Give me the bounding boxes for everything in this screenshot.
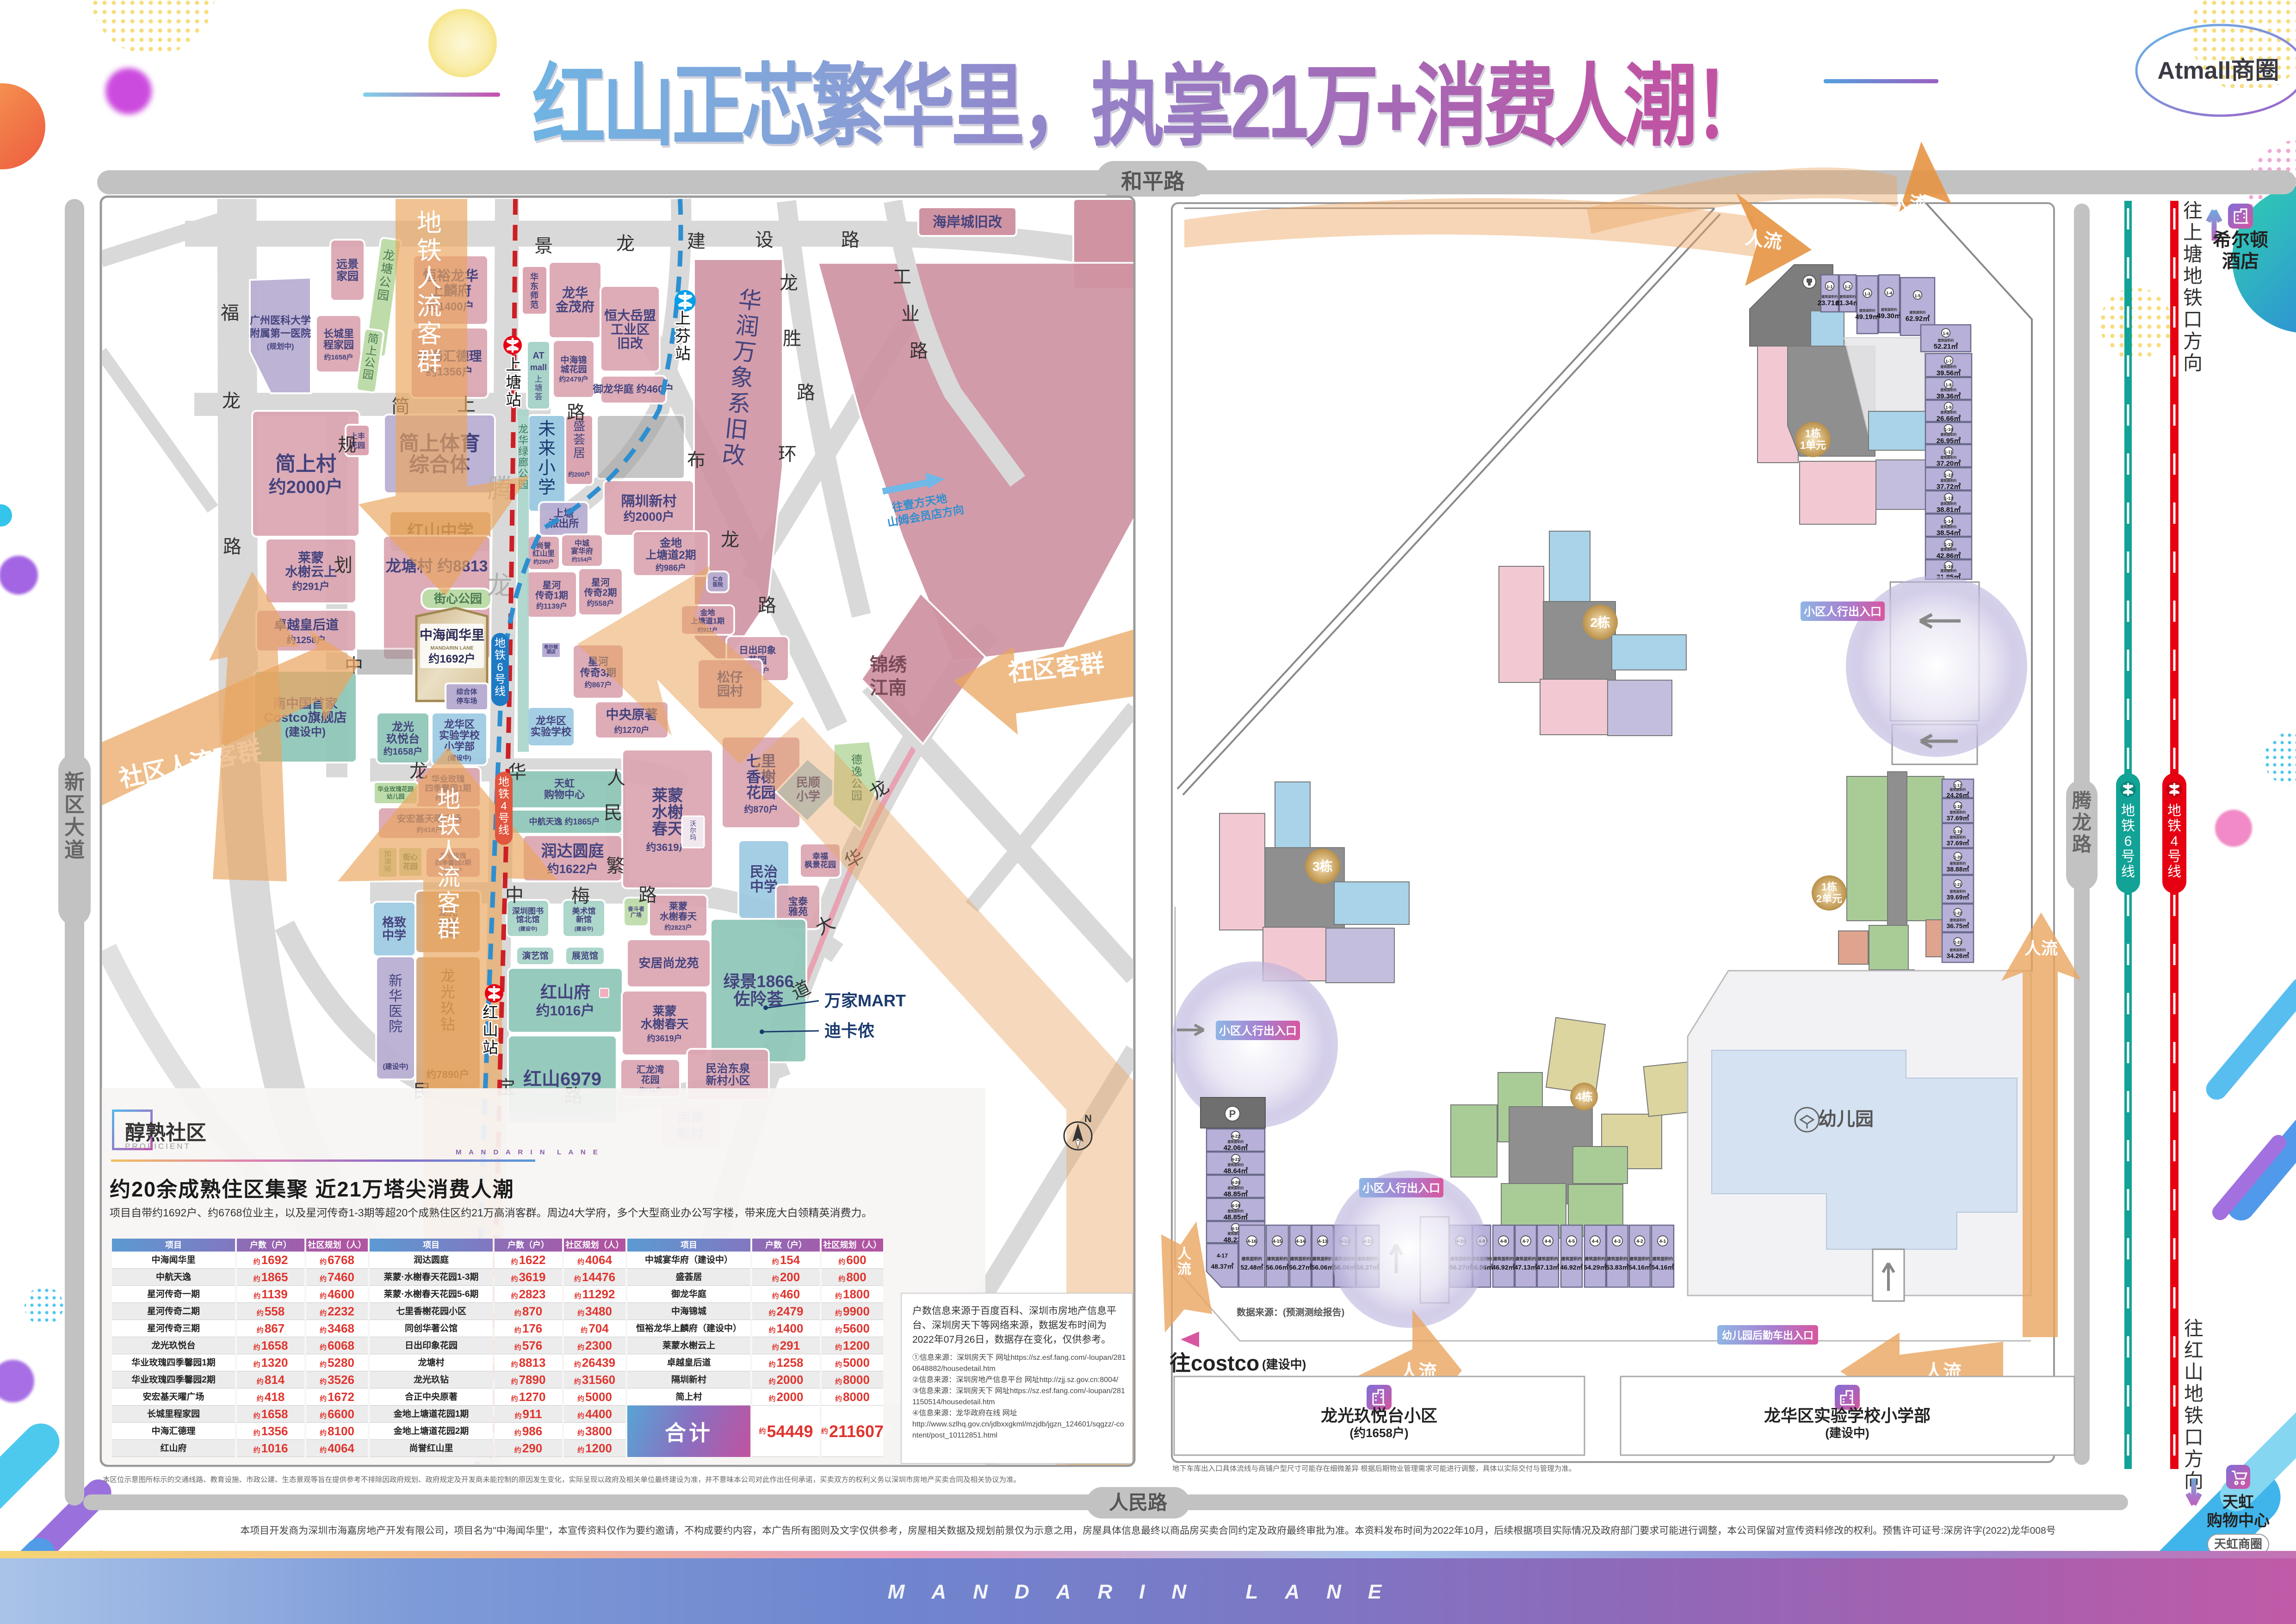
- svg-text:中学: 中学: [750, 879, 778, 895]
- svg-text:上: 上: [675, 310, 691, 328]
- svg-text:莱蒙: 莱蒙: [652, 787, 683, 805]
- svg-text:口: 口: [2184, 1426, 2203, 1448]
- svg-text:仁合: 仁合: [713, 576, 724, 582]
- svg-text:塘: 塘: [535, 384, 543, 392]
- svg-text:远景: 远景: [336, 258, 359, 271]
- svg-text:廊: 廊: [518, 457, 528, 468]
- svg-text:中航天逸 约1865户: 中航天逸 约1865户: [529, 817, 600, 826]
- svg-text:1-4: 1-4: [1886, 291, 1892, 295]
- svg-text:酒店: 酒店: [2222, 251, 2259, 272]
- svg-text:铁: 铁: [417, 237, 442, 265]
- svg-text:建筑面积约: 建筑面积约: [1840, 295, 1856, 299]
- svg-text:环: 环: [778, 444, 797, 465]
- svg-text:中: 中: [505, 885, 524, 905]
- svg-text:象: 象: [729, 364, 755, 392]
- svg-text:约290户: 约290户: [533, 558, 554, 565]
- svg-text:传奇2期: 传奇2期: [583, 587, 617, 598]
- svg-text:山: 山: [2184, 1361, 2203, 1383]
- svg-text:约1622户: 约1622户: [547, 862, 598, 876]
- svg-text:红山里: 红山里: [532, 549, 555, 558]
- svg-text:小区人行出入口: 小区人行出入口: [1219, 1024, 1297, 1037]
- svg-text:建筑面积约: 建筑面积约: [1607, 1256, 1628, 1261]
- svg-text:47.13㎡: 47.13㎡: [1536, 1264, 1559, 1271]
- svg-text:建筑面积约: 建筑面积约: [1910, 310, 1926, 315]
- svg-text:1-21: 1-21: [1954, 882, 1962, 886]
- svg-text:德: 德: [851, 754, 862, 766]
- svg-text:路: 路: [638, 885, 657, 905]
- svg-text:1-19: 1-19: [1954, 830, 1962, 834]
- svg-text:39.56㎡: 39.56㎡: [1937, 369, 1961, 377]
- svg-text:1-6: 1-6: [1943, 331, 1949, 336]
- svg-text:46.92㎡: 46.92㎡: [1492, 1264, 1515, 1271]
- svg-text:地: 地: [2184, 1383, 2203, 1405]
- svg-text:金地: 金地: [659, 536, 682, 549]
- svg-text:往: 往: [2183, 200, 2203, 222]
- svg-text:1-18: 1-18: [1954, 805, 1962, 809]
- svg-text:园: 园: [362, 368, 375, 382]
- svg-text:新馆: 新馆: [576, 915, 592, 924]
- svg-text:小区人行出入口: 小区人行出入口: [1804, 605, 1881, 618]
- svg-text:建筑面积约: 建筑面积约: [1493, 1256, 1514, 1261]
- svg-text:街心公园: 街心公园: [433, 592, 482, 606]
- svg-text:53.83㎡: 53.83㎡: [1606, 1264, 1628, 1271]
- svg-text:铁: 铁: [2183, 287, 2203, 309]
- svg-text:4-19: 4-19: [1232, 1203, 1240, 1208]
- svg-text:广州医科大学: 广州医科大学: [250, 315, 311, 326]
- svg-text:民治东泉: 民治东泉: [706, 1062, 751, 1075]
- svg-text:建筑面积约: 建筑面积约: [1584, 1256, 1605, 1261]
- svg-text:广场: 广场: [631, 911, 642, 918]
- svg-text:幼儿园后勤车出入口: 幼儿园后勤车出入口: [1722, 1330, 1813, 1341]
- svg-text:华: 华: [518, 434, 528, 446]
- svg-text:建筑面积约: 建筑面积约: [1941, 433, 1957, 437]
- svg-text:建筑面积约: 建筑面积约: [1950, 889, 1966, 893]
- svg-text:铁: 铁: [437, 812, 460, 838]
- svg-text:约1270户: 约1270户: [614, 725, 649, 735]
- svg-text:39.69㎡: 39.69㎡: [1946, 893, 1969, 901]
- svg-text:上塘道2期: 上塘道2期: [645, 548, 696, 561]
- svg-text:人民路: 人民路: [1109, 1492, 1168, 1513]
- svg-text:建筑面积约: 建筑面积约: [1941, 455, 1957, 459]
- svg-text:建筑面积约: 建筑面积约: [1881, 308, 1897, 312]
- svg-text:建筑面积约: 建筑面积约: [1859, 309, 1875, 313]
- svg-text:往costco: 往costco: [1170, 1351, 1259, 1375]
- svg-text:恒大岳盟: 恒大岳盟: [604, 309, 656, 323]
- svg-text:路: 路: [223, 537, 241, 557]
- svg-text:隔圳新村: 隔圳新村: [621, 494, 677, 509]
- svg-text:(规划中): (规划中): [267, 342, 294, 351]
- svg-text:方: 方: [2183, 330, 2203, 352]
- svg-text:站: 站: [483, 1039, 498, 1057]
- svg-text:程家园: 程家园: [323, 339, 354, 351]
- svg-text:红山6979: 红山6979: [523, 1069, 601, 1090]
- svg-text:N: N: [1084, 1113, 1092, 1124]
- svg-text:流: 流: [417, 292, 442, 320]
- svg-text:春天: 春天: [652, 820, 683, 838]
- svg-text:52.21㎡: 52.21㎡: [1934, 342, 1958, 351]
- svg-text:景: 景: [534, 236, 553, 256]
- svg-text:1-16: 1-16: [1944, 564, 1953, 569]
- svg-text:流: 流: [1177, 1262, 1191, 1277]
- svg-text:1-5: 1-5: [1914, 293, 1920, 298]
- svg-text:4-6: 4-6: [1545, 1239, 1552, 1244]
- svg-text:47.13㎡: 47.13㎡: [1514, 1264, 1537, 1271]
- svg-text:号: 号: [2121, 849, 2135, 864]
- svg-text:小: 小: [538, 459, 556, 478]
- svg-text:铁: 铁: [2121, 818, 2135, 834]
- svg-text:路: 路: [2072, 833, 2092, 855]
- svg-text:线: 线: [498, 824, 509, 837]
- svg-text:42.86㎡: 42.86㎡: [1937, 552, 1961, 560]
- svg-text:水榭云上: 水榭云上: [285, 564, 337, 579]
- svg-text:39.36㎡: 39.36㎡: [1937, 392, 1961, 400]
- svg-text:师: 师: [530, 291, 538, 300]
- svg-text:4: 4: [501, 800, 507, 812]
- svg-text:中海闻华里: 中海闻华里: [420, 627, 484, 642]
- svg-text:龙: 龙: [382, 248, 396, 263]
- svg-text:建筑面积约: 建筑面积约: [1941, 502, 1957, 506]
- svg-text:建筑面积约: 建筑面积约: [1312, 1256, 1333, 1261]
- svg-text:万: 万: [732, 338, 758, 366]
- svg-text:上: 上: [506, 356, 521, 374]
- svg-text:地: 地: [2183, 265, 2203, 287]
- svg-text:1-23: 1-23: [1954, 941, 1962, 945]
- svg-text:汇龙湾: 汇龙湾: [637, 1064, 664, 1075]
- svg-text:中城: 中城: [575, 539, 589, 548]
- svg-text:宴华府: 宴华府: [571, 547, 593, 556]
- svg-text:4-16: 4-16: [1247, 1239, 1256, 1244]
- svg-text:48.37㎡: 48.37㎡: [1211, 1263, 1233, 1270]
- svg-text:约1016户: 约1016户: [536, 1003, 595, 1018]
- svg-text:龙华区: 龙华区: [444, 719, 475, 730]
- svg-text:海岸城旧改: 海岸城旧改: [933, 215, 1002, 230]
- svg-text:迪卡侬: 迪卡侬: [824, 1021, 874, 1040]
- svg-text:规: 规: [338, 435, 356, 455]
- svg-text:建筑面积约: 建筑面积约: [1941, 547, 1957, 552]
- svg-text:华: 华: [530, 272, 538, 282]
- svg-text:49.30㎡: 49.30㎡: [1877, 311, 1901, 320]
- svg-text:1-14: 1-14: [1944, 519, 1953, 524]
- svg-text:天虹: 天虹: [554, 778, 575, 789]
- svg-text:37.69㎡: 37.69㎡: [1946, 814, 1969, 822]
- svg-text:龙: 龙: [222, 391, 241, 411]
- svg-text:旧改: 旧改: [617, 336, 643, 351]
- svg-text:居: 居: [573, 446, 585, 460]
- svg-text:龙光: 龙光: [392, 721, 414, 733]
- svg-text:沃: 沃: [690, 820, 696, 827]
- svg-text:公: 公: [378, 274, 392, 290]
- svg-text:56.06㎡: 56.06㎡: [1266, 1264, 1288, 1271]
- svg-text:建筑面积约: 建筑面积约: [1950, 835, 1966, 839]
- svg-text:62.92㎡: 62.92㎡: [1906, 314, 1930, 322]
- svg-text:路: 路: [797, 383, 815, 403]
- svg-text:2栋: 2栋: [1590, 615, 1610, 630]
- svg-text:荟: 荟: [573, 433, 585, 446]
- svg-text:天虹商圈: 天虹商圈: [2214, 1537, 2262, 1551]
- svg-text:建筑面积约: 建筑面积约: [1561, 1256, 1582, 1261]
- svg-text:54.16㎡: 54.16㎡: [1651, 1264, 1674, 1271]
- svg-text:建筑面积约: 建筑面积约: [1941, 410, 1957, 415]
- svg-text:繁: 繁: [606, 856, 625, 876]
- svg-text:路: 路: [567, 403, 585, 423]
- svg-text:深圳图书: 深圳图书: [512, 906, 544, 916]
- svg-text:铁: 铁: [2184, 1405, 2203, 1426]
- svg-text:旧: 旧: [724, 415, 749, 443]
- svg-text:小区人行出入口: 小区人行出入口: [1362, 1182, 1440, 1195]
- svg-text:酒店: 酒店: [546, 649, 556, 655]
- svg-text:36.75㎡: 36.75㎡: [1946, 922, 1969, 930]
- svg-text:P: P: [1229, 1108, 1236, 1120]
- svg-text:塘: 塘: [506, 374, 521, 391]
- svg-text:建筑面积约: 建筑面积约: [1950, 862, 1966, 866]
- svg-text:路: 路: [758, 595, 776, 616]
- svg-text:4-20: 4-20: [1232, 1180, 1240, 1185]
- svg-text:莱蒙: 莱蒙: [669, 901, 687, 912]
- svg-text:4-8: 4-8: [1500, 1239, 1507, 1244]
- svg-text:约2000户: 约2000户: [269, 477, 343, 497]
- svg-text:客: 客: [417, 320, 442, 348]
- svg-text:48.85㎡: 48.85㎡: [1224, 1190, 1248, 1198]
- svg-text:大: 大: [64, 816, 85, 839]
- svg-text:龙华区: 龙华区: [536, 715, 566, 727]
- svg-text:地: 地: [2167, 803, 2181, 818]
- svg-text:演艺馆: 演艺馆: [522, 950, 548, 961]
- svg-text:金地: 金地: [699, 608, 715, 617]
- svg-text:家园: 家园: [336, 270, 359, 283]
- svg-text:宝泰: 宝泰: [788, 896, 808, 907]
- svg-text:荟: 荟: [535, 392, 543, 401]
- svg-text:龙华: 龙华: [562, 285, 588, 300]
- svg-text:1-20: 1-20: [1954, 855, 1962, 859]
- svg-text:建筑面积约: 建筑面积约: [1941, 478, 1957, 483]
- svg-text:(建设中): (建设中): [519, 925, 538, 932]
- svg-text:民: 民: [604, 803, 622, 823]
- svg-text:建筑面积约: 建筑面积约: [1228, 1140, 1244, 1144]
- svg-text:绿景1866: 绿景1866: [723, 972, 793, 991]
- svg-text:建筑面积约: 建筑面积约: [1652, 1256, 1673, 1261]
- svg-text:(建设中): (建设中): [1262, 1357, 1306, 1371]
- svg-text:约867户: 约867户: [585, 681, 612, 689]
- svg-text:雅苑: 雅苑: [788, 906, 808, 917]
- svg-text:4: 4: [2171, 834, 2178, 849]
- svg-text:人: 人: [417, 265, 442, 292]
- svg-text:建筑面积约: 建筑面积约: [1950, 810, 1966, 814]
- svg-text:红山府: 红山府: [540, 982, 590, 1001]
- svg-text:福: 福: [221, 303, 239, 323]
- svg-text:42.06㎡: 42.06㎡: [1224, 1144, 1248, 1152]
- svg-text:梅: 梅: [571, 886, 590, 906]
- svg-text:26.66㎡: 26.66㎡: [1937, 414, 1961, 422]
- svg-text:约3619户: 约3619户: [647, 1033, 682, 1043]
- svg-text:1栋: 1栋: [1805, 428, 1821, 440]
- svg-text:龙华区实验学校小学部: 龙华区实验学校小学部: [1764, 1406, 1931, 1425]
- svg-text:铁: 铁: [495, 649, 506, 662]
- svg-text:4-14: 4-14: [1296, 1239, 1305, 1244]
- svg-text:建: 建: [687, 231, 706, 252]
- svg-text:花园: 花园: [746, 784, 776, 801]
- svg-text:约870户: 约870户: [744, 804, 778, 815]
- svg-text:龙光玖悦台小区: 龙光玖悦台小区: [1321, 1406, 1437, 1425]
- svg-text:万家MART: 万家MART: [824, 991, 906, 1010]
- svg-text:润达圆庭: 润达圆庭: [541, 842, 604, 860]
- svg-text:布: 布: [687, 450, 706, 471]
- svg-text:1-3: 1-3: [1864, 291, 1870, 296]
- svg-text:4-17: 4-17: [1217, 1252, 1228, 1259]
- svg-text:建筑面积约: 建筑面积约: [1941, 525, 1957, 529]
- svg-text:建筑面积约: 建筑面积约: [1515, 1256, 1536, 1261]
- svg-text:线: 线: [2121, 864, 2135, 880]
- svg-text:尚誉: 尚誉: [536, 541, 551, 550]
- svg-text:客: 客: [437, 890, 460, 916]
- svg-text:改: 改: [721, 441, 747, 469]
- svg-text:站: 站: [506, 391, 521, 409]
- svg-text:地: 地: [495, 637, 506, 650]
- svg-text:建筑面积约: 建筑面积约: [1941, 388, 1957, 392]
- svg-text:地: 地: [2121, 803, 2135, 818]
- svg-text:水榭春天: 水榭春天: [640, 1017, 688, 1031]
- svg-text:号: 号: [2167, 849, 2181, 864]
- svg-text:号: 号: [495, 673, 506, 686]
- svg-text:上: 上: [2183, 222, 2203, 243]
- svg-text:群: 群: [417, 348, 442, 376]
- svg-text:华: 华: [737, 286, 763, 315]
- svg-text:路: 路: [841, 230, 860, 250]
- svg-text:4-2: 4-2: [1636, 1239, 1643, 1244]
- svg-text:4-1: 4-1: [1659, 1239, 1666, 1244]
- svg-text:站: 站: [675, 345, 691, 363]
- svg-text:Atmall商圈: Atmall商圈: [2158, 57, 2279, 84]
- svg-text:54.16㎡: 54.16㎡: [1628, 1264, 1651, 1271]
- svg-text:星河: 星河: [543, 580, 561, 591]
- svg-text:3栋: 3栋: [1312, 859, 1333, 874]
- svg-text:4-22: 4-22: [1232, 1134, 1240, 1139]
- svg-text:约200户: 约200户: [568, 471, 590, 478]
- svg-text:约1139户: 约1139户: [536, 602, 567, 611]
- svg-text:(建设中): (建设中): [285, 726, 326, 738]
- svg-text:佐阾荟: 佐阾荟: [733, 989, 783, 1008]
- svg-text:建筑面积约: 建筑面积约: [1537, 1256, 1558, 1261]
- svg-text:4-3: 4-3: [1614, 1239, 1621, 1244]
- svg-text:龙: 龙: [616, 234, 635, 254]
- svg-text:院: 院: [389, 1019, 402, 1035]
- svg-text:道: 道: [64, 839, 85, 862]
- svg-text:54.29㎡: 54.29㎡: [1584, 1264, 1606, 1271]
- svg-text:37.20㎡: 37.20㎡: [1937, 459, 1961, 468]
- svg-text:线: 线: [2167, 864, 2181, 880]
- svg-text:展览馆: 展览馆: [572, 950, 598, 961]
- svg-text:人: 人: [437, 838, 460, 864]
- svg-text:MANDARIN LANE: MANDARIN LANE: [431, 645, 474, 651]
- svg-text:1-17: 1-17: [1954, 783, 1962, 787]
- svg-text:1-2: 1-2: [1844, 285, 1850, 289]
- svg-text:区: 区: [64, 793, 85, 816]
- svg-text:约986户: 约986户: [656, 563, 686, 572]
- svg-text:4-5: 4-5: [1568, 1239, 1575, 1244]
- svg-text:天虹: 天虹: [2222, 1494, 2254, 1511]
- svg-text:AT: AT: [532, 351, 544, 361]
- svg-text:口: 口: [2183, 309, 2203, 330]
- svg-text:2单元: 2单元: [1816, 893, 1842, 905]
- svg-text:东: 东: [530, 281, 538, 291]
- svg-text:建筑面积约: 建筑面积约: [1228, 1209, 1244, 1213]
- svg-text:润: 润: [735, 312, 761, 341]
- svg-text:医院: 医院: [713, 581, 723, 588]
- svg-text:约1658户: 约1658户: [324, 353, 353, 361]
- svg-text:1-11: 1-11: [1944, 450, 1953, 454]
- svg-text:约2823户: 约2823户: [664, 924, 692, 931]
- svg-text:莱蒙: 莱蒙: [298, 551, 324, 565]
- svg-text:传奇1期: 传奇1期: [535, 590, 568, 601]
- svg-text:56.27㎡: 56.27㎡: [1289, 1264, 1312, 1271]
- svg-text:人流: 人流: [2024, 939, 2058, 958]
- svg-text:铁: 铁: [498, 788, 509, 800]
- svg-text:建筑面积约: 建筑面积约: [1822, 295, 1838, 299]
- svg-text:实验学校: 实验学校: [531, 726, 572, 738]
- svg-text:建筑面积约: 建筑面积约: [1950, 948, 1966, 952]
- svg-text:奋斗者: 奋斗者: [627, 905, 644, 912]
- svg-text:上: 上: [535, 375, 543, 384]
- svg-text:格致: 格致: [382, 915, 407, 929]
- svg-text:业: 业: [901, 304, 920, 324]
- svg-text:约1658户: 约1658户: [384, 746, 423, 757]
- svg-text:38.88㎡: 38.88㎡: [1946, 865, 1969, 873]
- svg-text:园: 园: [376, 287, 390, 303]
- svg-text:水榭春天: 水榭春天: [660, 911, 697, 922]
- svg-text:1-9: 1-9: [1945, 405, 1951, 410]
- svg-text:(建设中): (建设中): [1825, 1426, 1869, 1440]
- svg-text:金茂府: 金茂府: [555, 299, 594, 314]
- svg-text:26.95㎡: 26.95㎡: [1937, 436, 1961, 445]
- svg-text:综合体: 综合体: [456, 688, 477, 696]
- svg-text:路: 路: [910, 341, 928, 361]
- svg-text:红: 红: [2184, 1339, 2203, 1361]
- svg-text:46.92㎡: 46.92㎡: [1560, 1264, 1583, 1271]
- svg-text:医: 医: [389, 1004, 402, 1019]
- svg-text:建筑面积约: 建筑面积约: [1290, 1256, 1311, 1261]
- svg-text:约2000户: 约2000户: [624, 510, 675, 524]
- svg-text:芬: 芬: [675, 328, 691, 345]
- svg-text:绿: 绿: [518, 446, 528, 457]
- svg-text:华业玫瑰花园: 华业玫瑰花园: [378, 786, 414, 793]
- svg-text:1-13: 1-13: [1944, 496, 1953, 501]
- svg-text:新村小区: 新村小区: [706, 1074, 750, 1087]
- svg-text:锦绣: 锦绣: [870, 655, 907, 675]
- svg-text:长城里: 长城里: [323, 328, 354, 340]
- svg-text:约154户: 约154户: [572, 556, 592, 563]
- svg-text:人: 人: [1177, 1246, 1191, 1262]
- svg-text:花园: 花园: [641, 1075, 660, 1085]
- svg-text:玛: 玛: [690, 834, 696, 841]
- svg-text:号: 号: [498, 812, 509, 824]
- svg-text:4-7: 4-7: [1522, 1239, 1529, 1244]
- svg-text:塘: 塘: [380, 261, 394, 276]
- svg-text:塘: 塘: [2183, 243, 2203, 265]
- svg-text:建筑面积约: 建筑面积约: [1941, 365, 1957, 369]
- svg-text:枫景花园: 枫景花园: [805, 860, 836, 869]
- svg-text:幼儿园: 幼儿园: [1818, 1109, 1874, 1129]
- svg-text:数据来源：(预测测绘报告): 数据来源：(预测测绘报告): [1237, 1307, 1344, 1318]
- svg-text:简上村: 简上村: [275, 452, 336, 475]
- svg-text:建筑面积约: 建筑面积约: [1228, 1163, 1244, 1167]
- svg-text:1单元: 1单元: [1800, 440, 1826, 451]
- svg-text:建筑面积约: 建筑面积约: [1941, 569, 1957, 573]
- svg-text:地: 地: [417, 209, 442, 237]
- svg-text:停车场: 停车场: [456, 697, 477, 705]
- svg-text:约291户: 约291户: [292, 581, 330, 592]
- svg-text:山: 山: [483, 1022, 498, 1039]
- svg-text:民治: 民治: [750, 865, 778, 880]
- svg-text:设: 设: [755, 230, 774, 250]
